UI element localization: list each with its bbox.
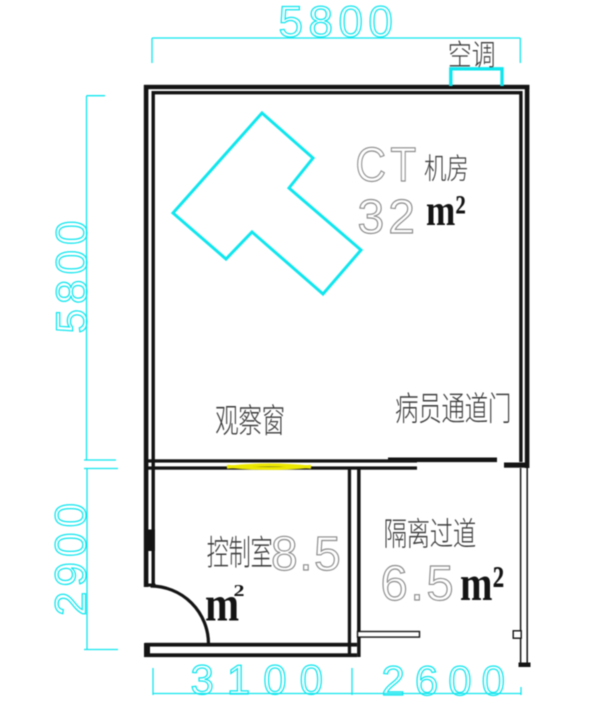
svg-text:2: 2 (234, 581, 245, 600)
svg-text:8.5: 8.5 (271, 528, 342, 581)
svg-text:6.5: 6.5 (381, 557, 457, 611)
svg-text:m²: m² (426, 185, 466, 235)
svg-text:3100: 3100 (191, 656, 336, 703)
svg-text:5800: 5800 (279, 0, 399, 47)
svg-text:2600: 2600 (382, 657, 515, 704)
svg-text:32: 32 (358, 191, 419, 244)
svg-text:CT: CT (356, 137, 421, 191)
svg-text:2900: 2900 (47, 498, 96, 616)
svg-text:m²: m² (460, 555, 504, 611)
svg-text:5800: 5800 (48, 216, 97, 334)
